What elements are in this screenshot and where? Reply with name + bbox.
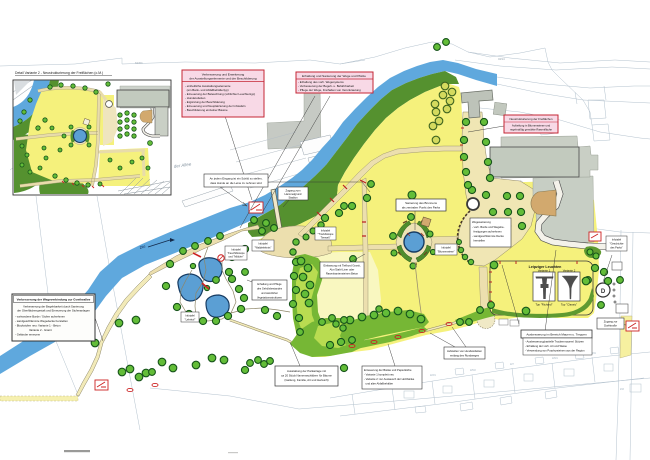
svg-text:223/1: 223/1 [430,375,436,377]
svg-text:regelmäßig gemähte Rasenfläche: regelmäßig gemähte Rasenfläche [510,128,552,132]
svg-text:Infotafel: Infotafel [321,229,331,233]
svg-text:Hammelgrund: Hammelgrund [285,192,302,196]
svg-text:und sämtlicher: und sämtlicher [261,291,278,295]
svg-text:- sandgeschlämmte Decke: - sandgeschlämmte Decke [472,234,504,238]
svg-text:- Variante 1 komplett neu: - Variante 1 komplett neu [364,373,394,377]
svg-text:festigungen aufnehmen: festigungen aufnehmen [472,230,502,234]
svg-text:entlang des Rundweges: entlang des Rundweges [450,354,479,358]
svg-text:und alter Abfallbehälter: und alter Abfallbehälter [364,382,393,386]
svg-text:An jedem Eingang ist ein Schil: An jedem Eingang ist ein Schild zu stell… [210,177,263,181]
svg-text:- Verwendung von Porphyrsteine: - Verwendung von Porphyrsteinen aus der … [525,349,585,353]
svg-text:Variante 2: Variante 2 [563,269,576,273]
svg-text:Ausstattung der Parkanlage mit: Ausstattung der Parkanlage mit [287,369,326,373]
svg-text:Variante 1: Variante 1 [538,269,551,273]
svg-text:- Beschilderung einzelner Bäum: - Beschilderung einzelner Bäume [185,108,228,112]
svg-text:Stadion: Stadion [288,196,298,200]
svg-text:(Gattung, Familie, Art und Her: (Gattung, Familie, Art und Herkunft) [284,378,328,382]
svg-text:als zentralen Punkt des Parks: als zentralen Punkt des Parks [402,206,441,210]
svg-text:Zugang zur: Zugang zur [604,320,618,324]
svg-text:Variante 2 - Granit: Variante 2 - Granit [15,328,52,332]
svg-text:- Pflege der Wege, Freihalten: - Pflege der Wege, Freihalten von Verunk… [298,88,361,92]
svg-text:dass Hunde an die Leine zu neh: dass Hunde an die Leine zu nehmen sind [210,181,262,185]
svg-text:Ausbesserung im Bereich Mauern: Ausbesserung im Bereich Mauern u. Treppe… [526,333,587,337]
svg-text:- sandgeschlämmte Wegedecke he: - sandgeschlämmte Wegedecke herstellen [15,319,68,323]
svg-text:Alu-/Stahl-Liner oder: Alu-/Stahl-Liner oder [330,268,355,272]
svg-text:0294: 0294 [498,57,505,61]
svg-text:Wegesanierung: Wegesanierung [472,220,491,224]
svg-text:Neustrukturierung der Freifläc: Neustrukturierung der Freiflächen [509,117,552,121]
svg-text:"Feuchtbiotope: "Feuchtbiotope [227,251,245,255]
svg-text:Verbesserung der Wegeverbindun: Verbesserung der Wegeverbindung zur Goet… [17,298,91,302]
svg-text:Sanierung des Brunnens: Sanierung des Brunnens [405,201,437,205]
svg-text:Tierwelt": Tierwelt" [321,236,331,240]
svg-text:Dorfstraße: Dorfstraße [604,324,617,328]
svg-text:Zugang zum: Zugang zum [286,189,302,193]
svg-text:Typ "Richard": Typ "Richard" [536,303,553,307]
svg-text:- vorh. Borde und Wegebe-: - vorh. Borde und Wegebe- [472,225,504,229]
svg-text:Typ "Classic": Typ "Classic" [561,303,577,307]
svg-text:Infotafel: Infotafel [612,238,622,242]
svg-text:ca 20 Stück Namensschildern fü: ca 20 Stück Namensschildern für Bäume [281,374,332,378]
svg-text:225/2: 225/2 [470,370,476,372]
svg-text:62/84: 62/84 [135,61,143,65]
svg-text:des Gehölzbestandes: des Gehölzbestandes [257,287,283,291]
svg-text:Infotafel: Infotafel [231,248,241,252]
svg-text:"Geschichte: "Geschichte [610,242,624,246]
svg-text:Erhaltung und Pflege: Erhaltung und Pflege [257,282,282,286]
svg-text:der Oberflächengestalt und Ern: der Oberflächengestalt und Erneuerung de… [17,309,90,313]
svg-text:der Ausstellungselemente und d: der Ausstellungselemente und der Beschil… [189,77,257,81]
svg-text:Einfassung mit Tiefbord Granit: Einfassung mit Tiefbord Granit, [324,264,361,268]
svg-text:Erneuerung der Bänke und Papie: Erneuerung der Bänke und Papierkörbe [364,368,412,372]
svg-text:Erhaltung und Sanierung der We: Erhaltung und Sanierung der Wege und Plä… [302,74,366,78]
svg-text:- Ausbesserung/partielle Trock: - Ausbesserung/partielle Trockenmauern/ … [525,340,584,344]
svg-text:"Blumenwiese": "Blumenwiese" [437,250,454,254]
svg-text:Rasenkantensteinen Beton: Rasenkantensteinen Beton [326,272,359,276]
svg-text:des Parks": des Parks" [610,246,623,250]
svg-text:Infotafel: Infotafel [185,314,195,318]
svg-text:D: D [601,289,606,295]
svg-text:- Variante 2: nur Austausch de: - Variante 2: nur Austausch der Holzbänk… [364,377,415,381]
svg-text:- Blockstufen neu: Variante 1: - Blockstufen neu: Variante 1 - Beton [15,324,61,328]
svg-text:"Trockbiotope: "Trockbiotope [318,232,334,236]
svg-text:- Geländer erneuern: - Geländer erneuern [15,333,41,337]
svg-text:und "Mölche": und "Mölche" [228,255,243,259]
svg-text:Infotafel: Infotafel [258,242,268,246]
svg-text:Detail Variante 2 - Neustruktu: Detail Variante 2 - Neustrukturierung de… [15,71,103,75]
svg-text:Infotafel: Infotafel [441,246,451,250]
svg-text:- vorhandene Borde / Stufen au: - vorhandene Borde / Stufen aufnehmen [15,315,65,319]
svg-text:Vegetationsstrukturen: Vegetationsstrukturen [257,296,283,300]
svg-text:herstellen: herstellen [472,239,486,243]
svg-text:"Walderlebnis": "Walderlebnis" [255,246,272,250]
svg-text:- Erhaltung der vorh. Art und: - Erhaltung der vorh. Art und Weise [525,344,567,348]
svg-text:"Lehrhof": "Lehrhof" [185,318,196,322]
svg-text:Aufstellen von Hundetoiletten: Aufstellen von Hundetoiletten [447,349,482,353]
svg-text:229/1: 229/1 [552,358,558,360]
